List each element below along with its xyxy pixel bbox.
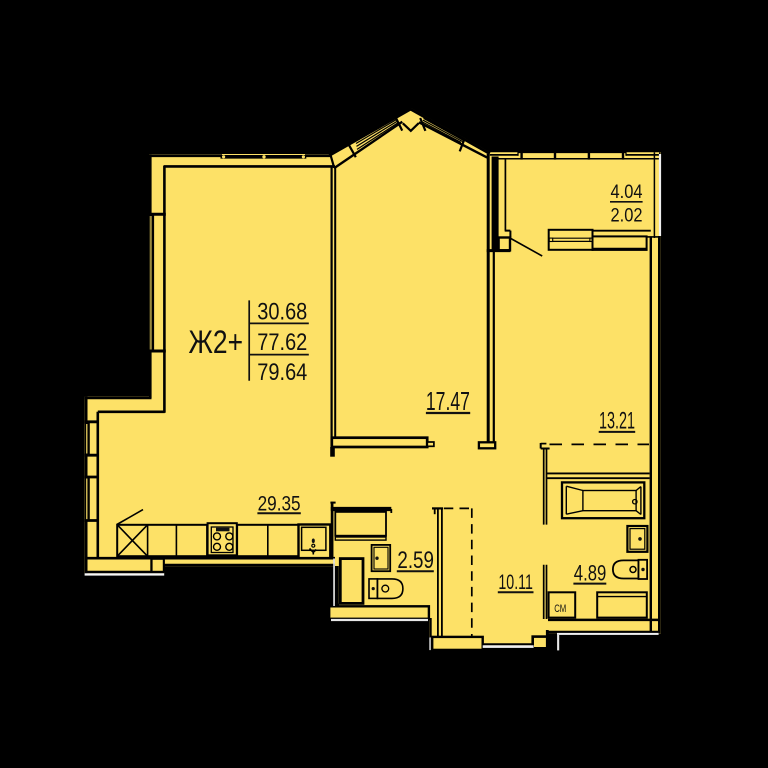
svg-text:4.04: 4.04 — [611, 182, 643, 203]
svg-text:2.02: 2.02 — [611, 205, 643, 226]
svg-text:10.11: 10.11 — [498, 570, 533, 594]
svg-text:4.89: 4.89 — [574, 560, 607, 585]
svg-text:2.59: 2.59 — [397, 547, 434, 574]
svg-text:77.62: 77.62 — [257, 329, 307, 356]
svg-text:29.35: 29.35 — [258, 492, 301, 516]
svg-text:Ж2+: Ж2+ — [189, 324, 244, 360]
svg-text:17.47: 17.47 — [426, 386, 470, 416]
svg-text:79.64: 79.64 — [257, 359, 307, 386]
svg-text:СМ: СМ — [554, 603, 566, 615]
svg-text:13.21: 13.21 — [599, 408, 635, 435]
svg-text:30.68: 30.68 — [257, 299, 307, 326]
